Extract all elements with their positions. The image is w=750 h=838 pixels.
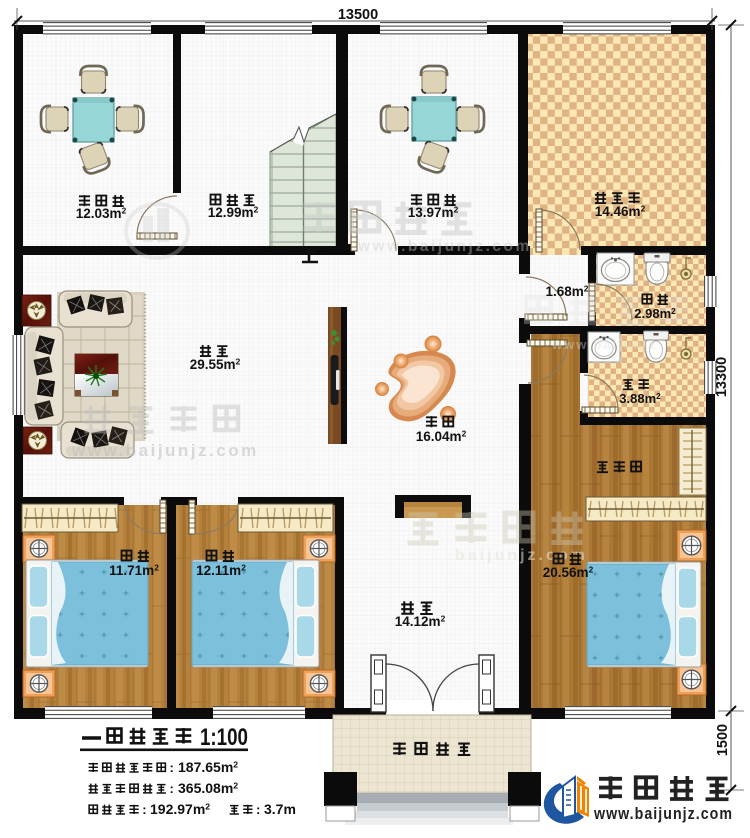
svg-text:365.08m2: 365.08m2 bbox=[178, 780, 238, 796]
svg-text:3.88m2: 3.88m2 bbox=[619, 391, 661, 406]
svg-text:12.11m2: 12.11m2 bbox=[196, 563, 246, 578]
svg-text:1500: 1500 bbox=[715, 724, 731, 756]
svg-text:www.baijunjz: www.baijunjz bbox=[551, 337, 658, 352]
svg-text::: : bbox=[170, 760, 174, 775]
svg-text::: : bbox=[142, 802, 146, 817]
svg-text:2.98m2: 2.98m2 bbox=[634, 306, 676, 321]
svg-text:20.56m2: 20.56m2 bbox=[543, 565, 594, 580]
svg-text:www.baijunjz.com: www.baijunjz.com bbox=[593, 805, 733, 823]
svg-text:14.46m2: 14.46m2 bbox=[595, 204, 646, 219]
svg-text:baijunjz.com: baijunjz.com bbox=[455, 547, 588, 564]
svg-text:3.7m: 3.7m bbox=[264, 801, 296, 817]
svg-text:12.03m2: 12.03m2 bbox=[76, 206, 127, 221]
svg-text:1:100: 1:100 bbox=[200, 724, 248, 751]
svg-text:16.04m2: 16.04m2 bbox=[416, 429, 467, 444]
svg-text:www.baijunjz.com: www.baijunjz.com bbox=[71, 441, 259, 460]
svg-text:1.68m2: 1.68m2 bbox=[546, 284, 589, 299]
svg-text:13.97m2: 13.97m2 bbox=[408, 205, 459, 220]
svg-text:13500: 13500 bbox=[338, 7, 378, 23]
svg-text:12.99m2: 12.99m2 bbox=[208, 205, 259, 220]
svg-text:29.55m2: 29.55m2 bbox=[190, 357, 241, 372]
svg-text:11.71m2: 11.71m2 bbox=[109, 563, 159, 578]
svg-text:187.65m2: 187.65m2 bbox=[178, 759, 238, 775]
svg-text:www.baijunjz.com: www.baijunjz.com bbox=[357, 238, 532, 255]
svg-text::: : bbox=[256, 802, 260, 817]
svg-text:13300: 13300 bbox=[714, 357, 730, 397]
svg-text:192.97m2: 192.97m2 bbox=[150, 801, 210, 817]
svg-text:14.12m2: 14.12m2 bbox=[395, 614, 446, 629]
svg-text::: : bbox=[170, 781, 174, 796]
